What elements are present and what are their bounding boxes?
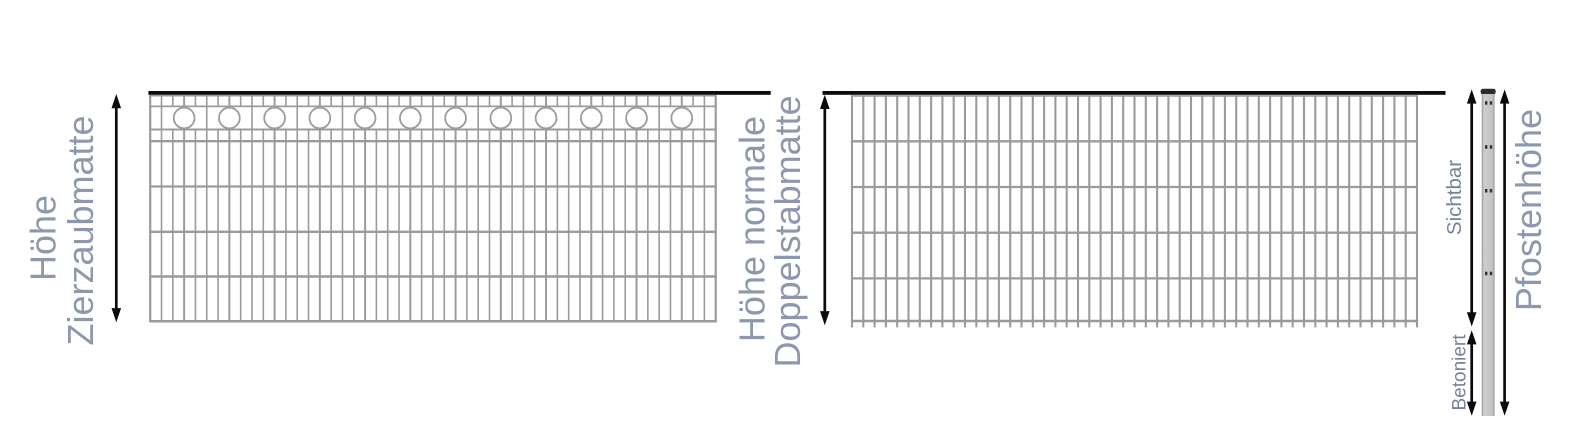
svg-text:Höhe: Höhe	[23, 195, 64, 281]
svg-text:Sichtbar: Sichtbar	[1443, 160, 1466, 235]
svg-text:Doppelstabmatte: Doppelstabmatte	[767, 95, 808, 367]
svg-text:Zierzaubmatte: Zierzaubmatte	[60, 115, 101, 345]
svg-text:Betoniert: Betoniert	[1449, 334, 1470, 411]
svg-text:Pfostenhöhe: Pfostenhöhe	[1508, 109, 1549, 311]
